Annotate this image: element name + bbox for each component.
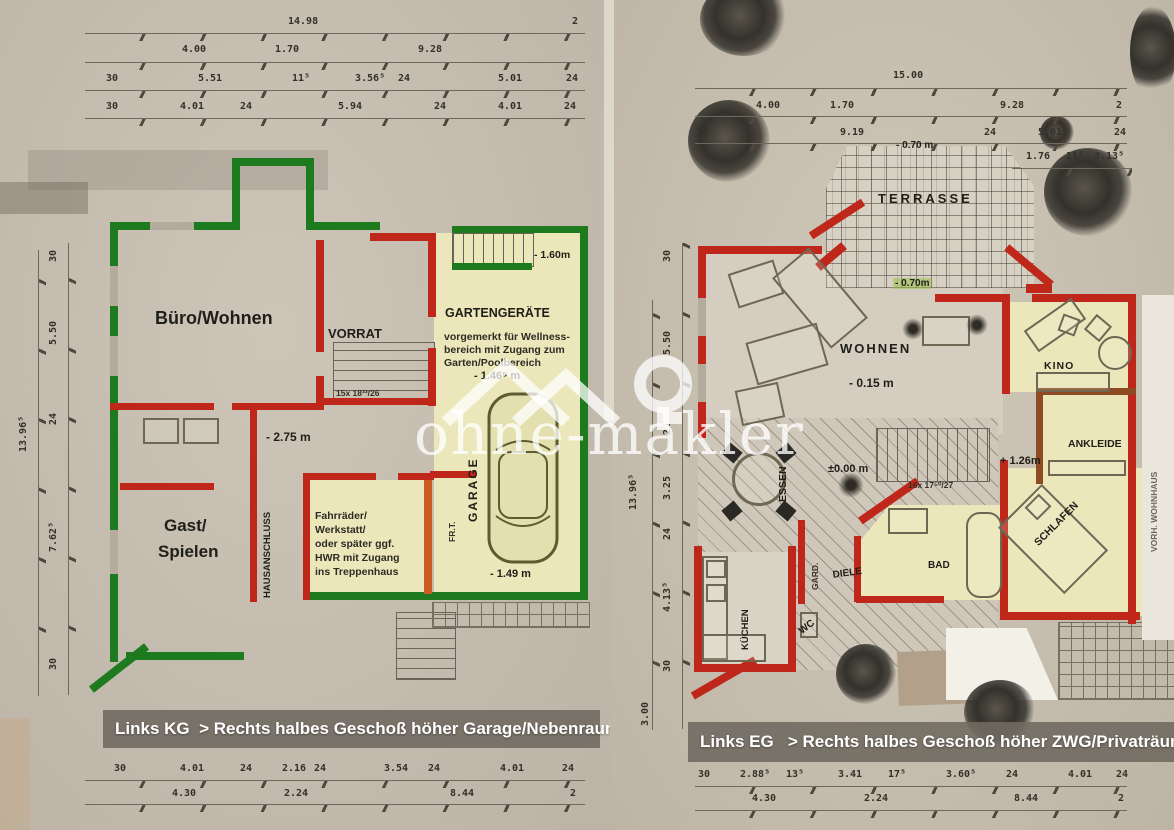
room-label: WC [797, 618, 817, 637]
floor-plan-scan: Links KG > Rechts halbes Geschoß höher G… [0, 0, 1174, 830]
annotation-label: - 0.15 m [849, 376, 894, 390]
room-label: SCHLAFEN [1032, 500, 1081, 549]
room-label: DIELE [832, 566, 863, 581]
room-label: WOHNEN [840, 341, 911, 356]
annotation-label: - 0.70m [893, 278, 931, 289]
room-label: BAD [928, 560, 950, 571]
room-label: ANKLEIDE [1068, 438, 1122, 450]
right-labels-layer: TERRASSE- 0.70 m- 0.70mWOHNEN- 0.15 mKIN… [0, 0, 1174, 830]
room-label: ESSEN [777, 466, 789, 502]
annotation-label: + 1.26m [1000, 455, 1041, 467]
annotation-label: - 0.70 m [896, 140, 933, 151]
room-label: KÜCHEN [740, 609, 751, 650]
annotation-label: 16x 17⁵⁰/27 [908, 480, 953, 491]
annotation-label: GARD. [810, 563, 820, 590]
annotation-label: VORH. WOHNHAUS [1149, 472, 1159, 552]
room-label: TERRASSE [878, 191, 973, 206]
room-label: KINO [1044, 360, 1074, 372]
annotation-label: ±0.00 m [828, 463, 868, 475]
